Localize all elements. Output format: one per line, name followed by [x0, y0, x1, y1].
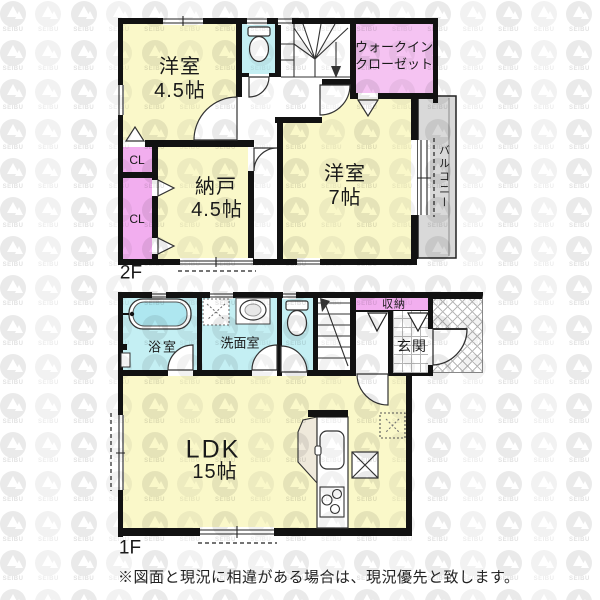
- floor-plan-overlay: [0, 0, 600, 600]
- closet-door-marker: [368, 313, 387, 331]
- entrance-door-arc: [433, 329, 467, 365]
- entrance-inner-wall: [388, 311, 393, 373]
- floor-plan-page: SEIBUSEIBUSEIBUSEIBUSEIBUSEIBUSEIBUSEIBU…: [0, 0, 600, 600]
- closet-door-marker: [408, 313, 428, 331]
